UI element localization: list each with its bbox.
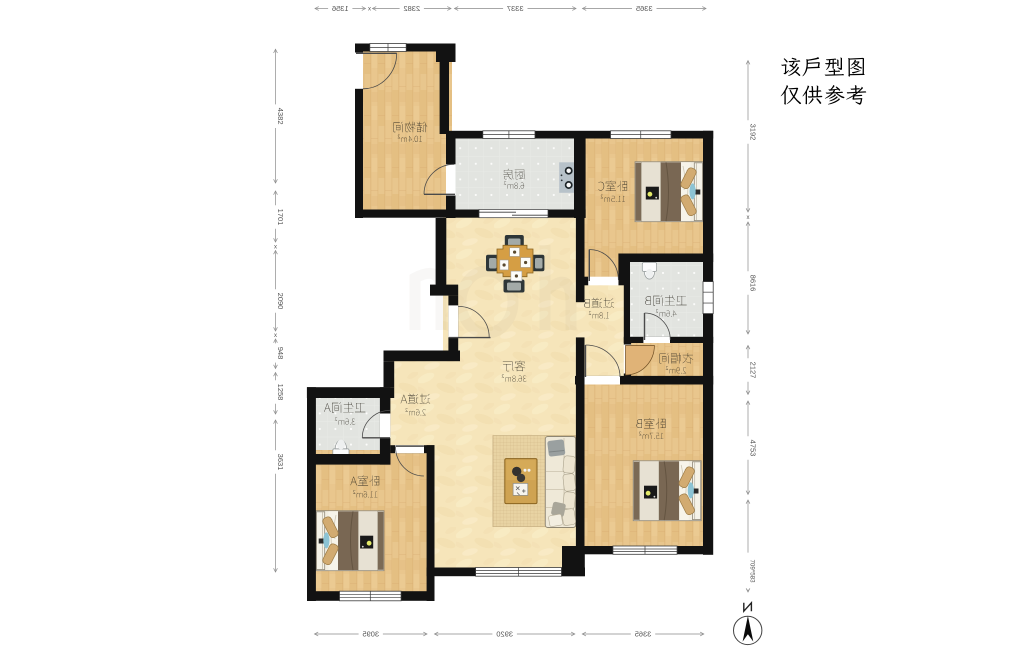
svg-text:3365: 3365 xyxy=(635,630,652,639)
svg-text:x: x xyxy=(368,7,371,13)
svg-text:1258: 1258 xyxy=(276,384,285,401)
svg-text:3337: 3337 xyxy=(507,4,524,13)
svg-text:x: x xyxy=(274,245,277,251)
svg-text:709*583: 709*583 xyxy=(749,559,756,583)
svg-text:3192: 3192 xyxy=(749,124,758,141)
svg-text:1701: 1701 xyxy=(276,209,285,226)
svg-text:3365: 3365 xyxy=(636,4,653,13)
svg-text:2090: 2090 xyxy=(276,293,285,310)
svg-text:2382: 2382 xyxy=(403,4,420,13)
svg-text:2127: 2127 xyxy=(749,362,758,379)
svg-text:4382: 4382 xyxy=(276,108,285,125)
svg-text:3095: 3095 xyxy=(362,630,379,639)
svg-text:8616: 8616 xyxy=(749,275,758,292)
svg-text:4753: 4753 xyxy=(749,440,758,457)
svg-text:3631: 3631 xyxy=(276,454,285,471)
svg-text:3920: 3920 xyxy=(496,630,513,639)
svg-text:x: x xyxy=(274,333,277,339)
svg-text:948: 948 xyxy=(276,347,285,360)
svg-text:1356: 1356 xyxy=(332,4,349,13)
svg-text:x: x xyxy=(747,215,750,221)
